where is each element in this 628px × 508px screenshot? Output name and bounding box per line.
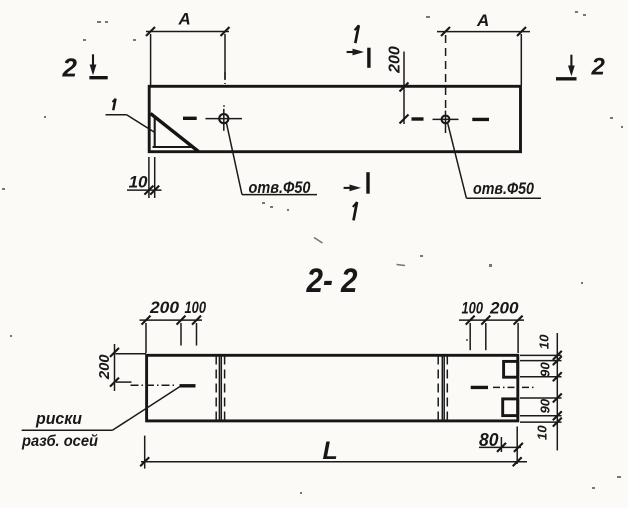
svg-text:90: 90 <box>537 362 552 377</box>
svg-text:10: 10 <box>534 425 549 440</box>
svg-text:200: 200 <box>97 354 113 380</box>
svg-text:2: 2 <box>62 53 78 83</box>
svg-text:10: 10 <box>129 173 148 192</box>
svg-text:100: 100 <box>185 298 207 317</box>
svg-text:80: 80 <box>479 430 499 450</box>
svg-text:2: 2 <box>591 53 606 80</box>
svg-text:200: 200 <box>489 298 519 317</box>
svg-text:A: A <box>178 9 191 28</box>
svg-text:200: 200 <box>387 46 404 74</box>
svg-text:10: 10 <box>536 334 551 349</box>
svg-text:200: 200 <box>149 298 180 317</box>
svg-text:риски: риски <box>35 409 82 428</box>
svg-text:отв.Ф50: отв.Ф50 <box>473 180 535 198</box>
svg-text:90: 90 <box>537 398 552 413</box>
svg-text:100: 100 <box>462 298 484 317</box>
svg-text:2- 2: 2- 2 <box>306 262 358 300</box>
svg-text:L: L <box>323 437 338 465</box>
svg-text:отв.Ф50: отв.Ф50 <box>249 179 312 197</box>
svg-text:A: A <box>476 11 489 30</box>
svg-text:разб. осей: разб. осей <box>21 433 98 450</box>
